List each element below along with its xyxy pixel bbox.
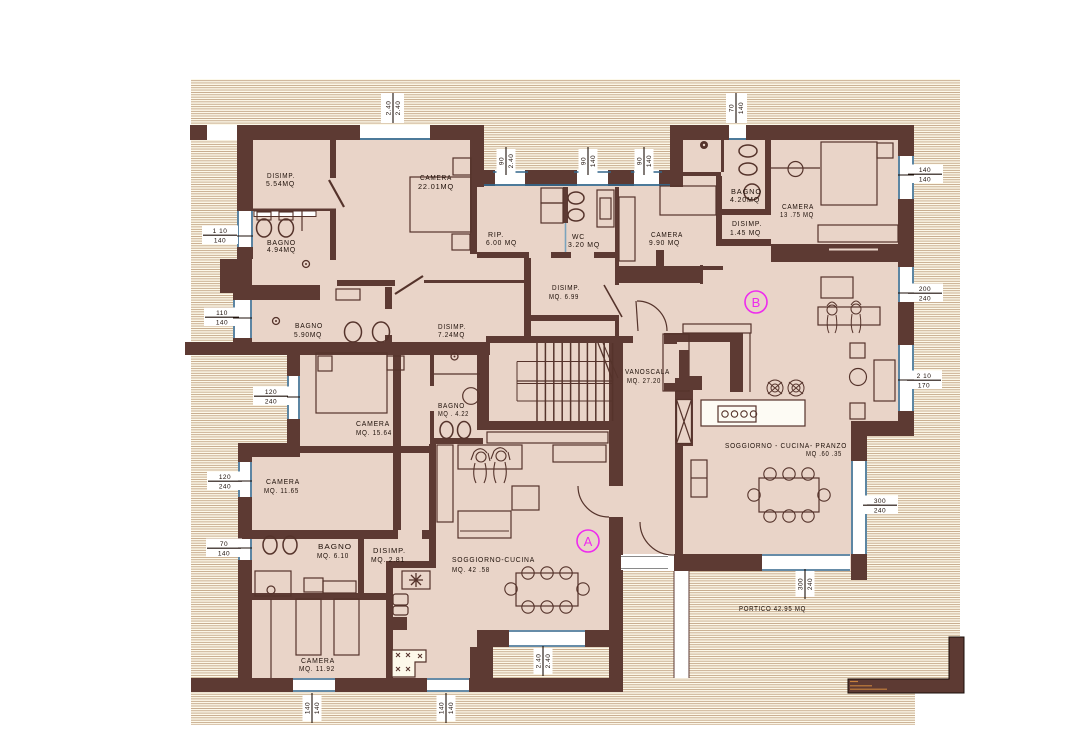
svg-text:240: 240 <box>874 508 886 515</box>
svg-text:6.00 MQ: 6.00 MQ <box>486 240 517 247</box>
svg-text:240: 240 <box>265 399 277 406</box>
svg-text:140: 140 <box>218 551 230 558</box>
svg-text:CAMERA: CAMERA <box>266 479 300 486</box>
svg-text:MQ. 2.81: MQ. 2.81 <box>371 557 405 564</box>
svg-text:4.20MQ: 4.20MQ <box>730 197 760 204</box>
svg-text:5.54MQ: 5.54MQ <box>266 181 295 188</box>
svg-text:240: 240 <box>807 578 814 590</box>
svg-text:140: 140 <box>448 702 455 714</box>
svg-text:70: 70 <box>729 104 736 112</box>
svg-text:PORTICO 42.95 MQ: PORTICO 42.95 MQ <box>739 606 806 613</box>
svg-text:140: 140 <box>919 177 931 184</box>
svg-text:CAMERA: CAMERA <box>420 175 452 182</box>
svg-text:RIP.: RIP. <box>488 232 504 239</box>
svg-text:VANOSCALA: VANOSCALA <box>625 369 670 376</box>
svg-text:CAMERA: CAMERA <box>782 204 814 211</box>
svg-text:3.20 MQ: 3.20 MQ <box>568 242 600 249</box>
svg-text:2.40: 2.40 <box>395 101 402 116</box>
svg-text:CAMERA: CAMERA <box>356 421 390 428</box>
svg-text:140: 140 <box>216 320 228 327</box>
svg-text:BAGNO: BAGNO <box>438 403 465 410</box>
svg-text:4.94MQ: 4.94MQ <box>267 247 296 254</box>
svg-text:7.24MQ: 7.24MQ <box>438 332 465 339</box>
svg-text:170: 170 <box>918 383 930 390</box>
svg-text:MQ .60 .35: MQ .60 .35 <box>806 451 842 458</box>
svg-text:140: 140 <box>738 102 745 114</box>
svg-text:90: 90 <box>637 157 644 165</box>
svg-text:90: 90 <box>499 157 506 165</box>
svg-text:1.45 MQ: 1.45 MQ <box>730 230 761 237</box>
svg-text:140: 140 <box>305 702 312 714</box>
svg-text:70: 70 <box>220 541 228 548</box>
svg-text:MQ. 11.92: MQ. 11.92 <box>299 666 335 673</box>
svg-text:2.40: 2.40 <box>545 654 552 669</box>
svg-text:5.90MQ: 5.90MQ <box>294 332 322 339</box>
svg-text:9.90 MQ: 9.90 MQ <box>649 240 680 247</box>
svg-text:140: 140 <box>314 702 321 714</box>
svg-text:DISIMP.: DISIMP. <box>552 285 580 292</box>
svg-text:SOGGIORNO - CUCINA- PRANZO: SOGGIORNO - CUCINA- PRANZO <box>725 443 847 450</box>
svg-text:22.01MQ: 22.01MQ <box>418 184 454 191</box>
svg-text:MQ. 6.10: MQ. 6.10 <box>317 553 349 560</box>
svg-text:300: 300 <box>874 498 886 505</box>
svg-text:120: 120 <box>219 474 231 481</box>
svg-text:MQ . 4.22: MQ . 4.22 <box>438 411 469 418</box>
svg-text:BAGNO: BAGNO <box>295 323 323 330</box>
svg-text:CAMERA: CAMERA <box>301 658 335 665</box>
svg-text:2.40: 2.40 <box>508 154 515 169</box>
svg-text:1 10: 1 10 <box>213 228 228 235</box>
svg-text:13 .75 MQ: 13 .75 MQ <box>780 212 814 219</box>
svg-text:200: 200 <box>919 286 931 293</box>
svg-text:MQ. 27.20: MQ. 27.20 <box>627 378 661 385</box>
svg-text:DISIMP.: DISIMP. <box>438 324 466 331</box>
svg-text:DISIMP.: DISIMP. <box>373 548 406 555</box>
svg-text:140: 140 <box>590 155 597 167</box>
svg-text:MQ. 6.99: MQ. 6.99 <box>549 294 579 301</box>
svg-text:CAMERA: CAMERA <box>651 232 683 239</box>
svg-text:2.40: 2.40 <box>536 654 543 669</box>
svg-text:DISIMP.: DISIMP. <box>267 173 295 180</box>
svg-text:240: 240 <box>219 484 231 491</box>
svg-text:2 10: 2 10 <box>917 373 932 380</box>
svg-text:MQ. 11.65: MQ. 11.65 <box>264 488 299 495</box>
svg-text:B: B <box>752 295 761 310</box>
svg-text:140: 140 <box>646 155 653 167</box>
svg-text:240: 240 <box>919 296 931 303</box>
svg-text:140: 140 <box>214 238 226 245</box>
svg-text:140: 140 <box>439 702 446 714</box>
svg-text:A: A <box>584 534 593 549</box>
svg-text:MQ. 15.64: MQ. 15.64 <box>356 430 392 437</box>
svg-text:WC: WC <box>572 234 585 241</box>
svg-text:90: 90 <box>581 157 588 165</box>
svg-text:BAGNO: BAGNO <box>731 189 762 196</box>
svg-text:120: 120 <box>265 389 277 396</box>
svg-text:DISIMP.: DISIMP. <box>732 221 762 228</box>
svg-text:BAGNO: BAGNO <box>318 544 352 551</box>
svg-text:MQ. 42 .58: MQ. 42 .58 <box>452 567 490 574</box>
svg-text:BAGNO: BAGNO <box>267 240 296 247</box>
svg-text:300: 300 <box>798 578 805 590</box>
svg-text:110: 110 <box>216 310 228 317</box>
svg-text:2.40: 2.40 <box>386 101 393 116</box>
svg-text:140: 140 <box>919 167 931 174</box>
svg-text:SOGGIORNO-CUCINA: SOGGIORNO-CUCINA <box>452 557 535 564</box>
